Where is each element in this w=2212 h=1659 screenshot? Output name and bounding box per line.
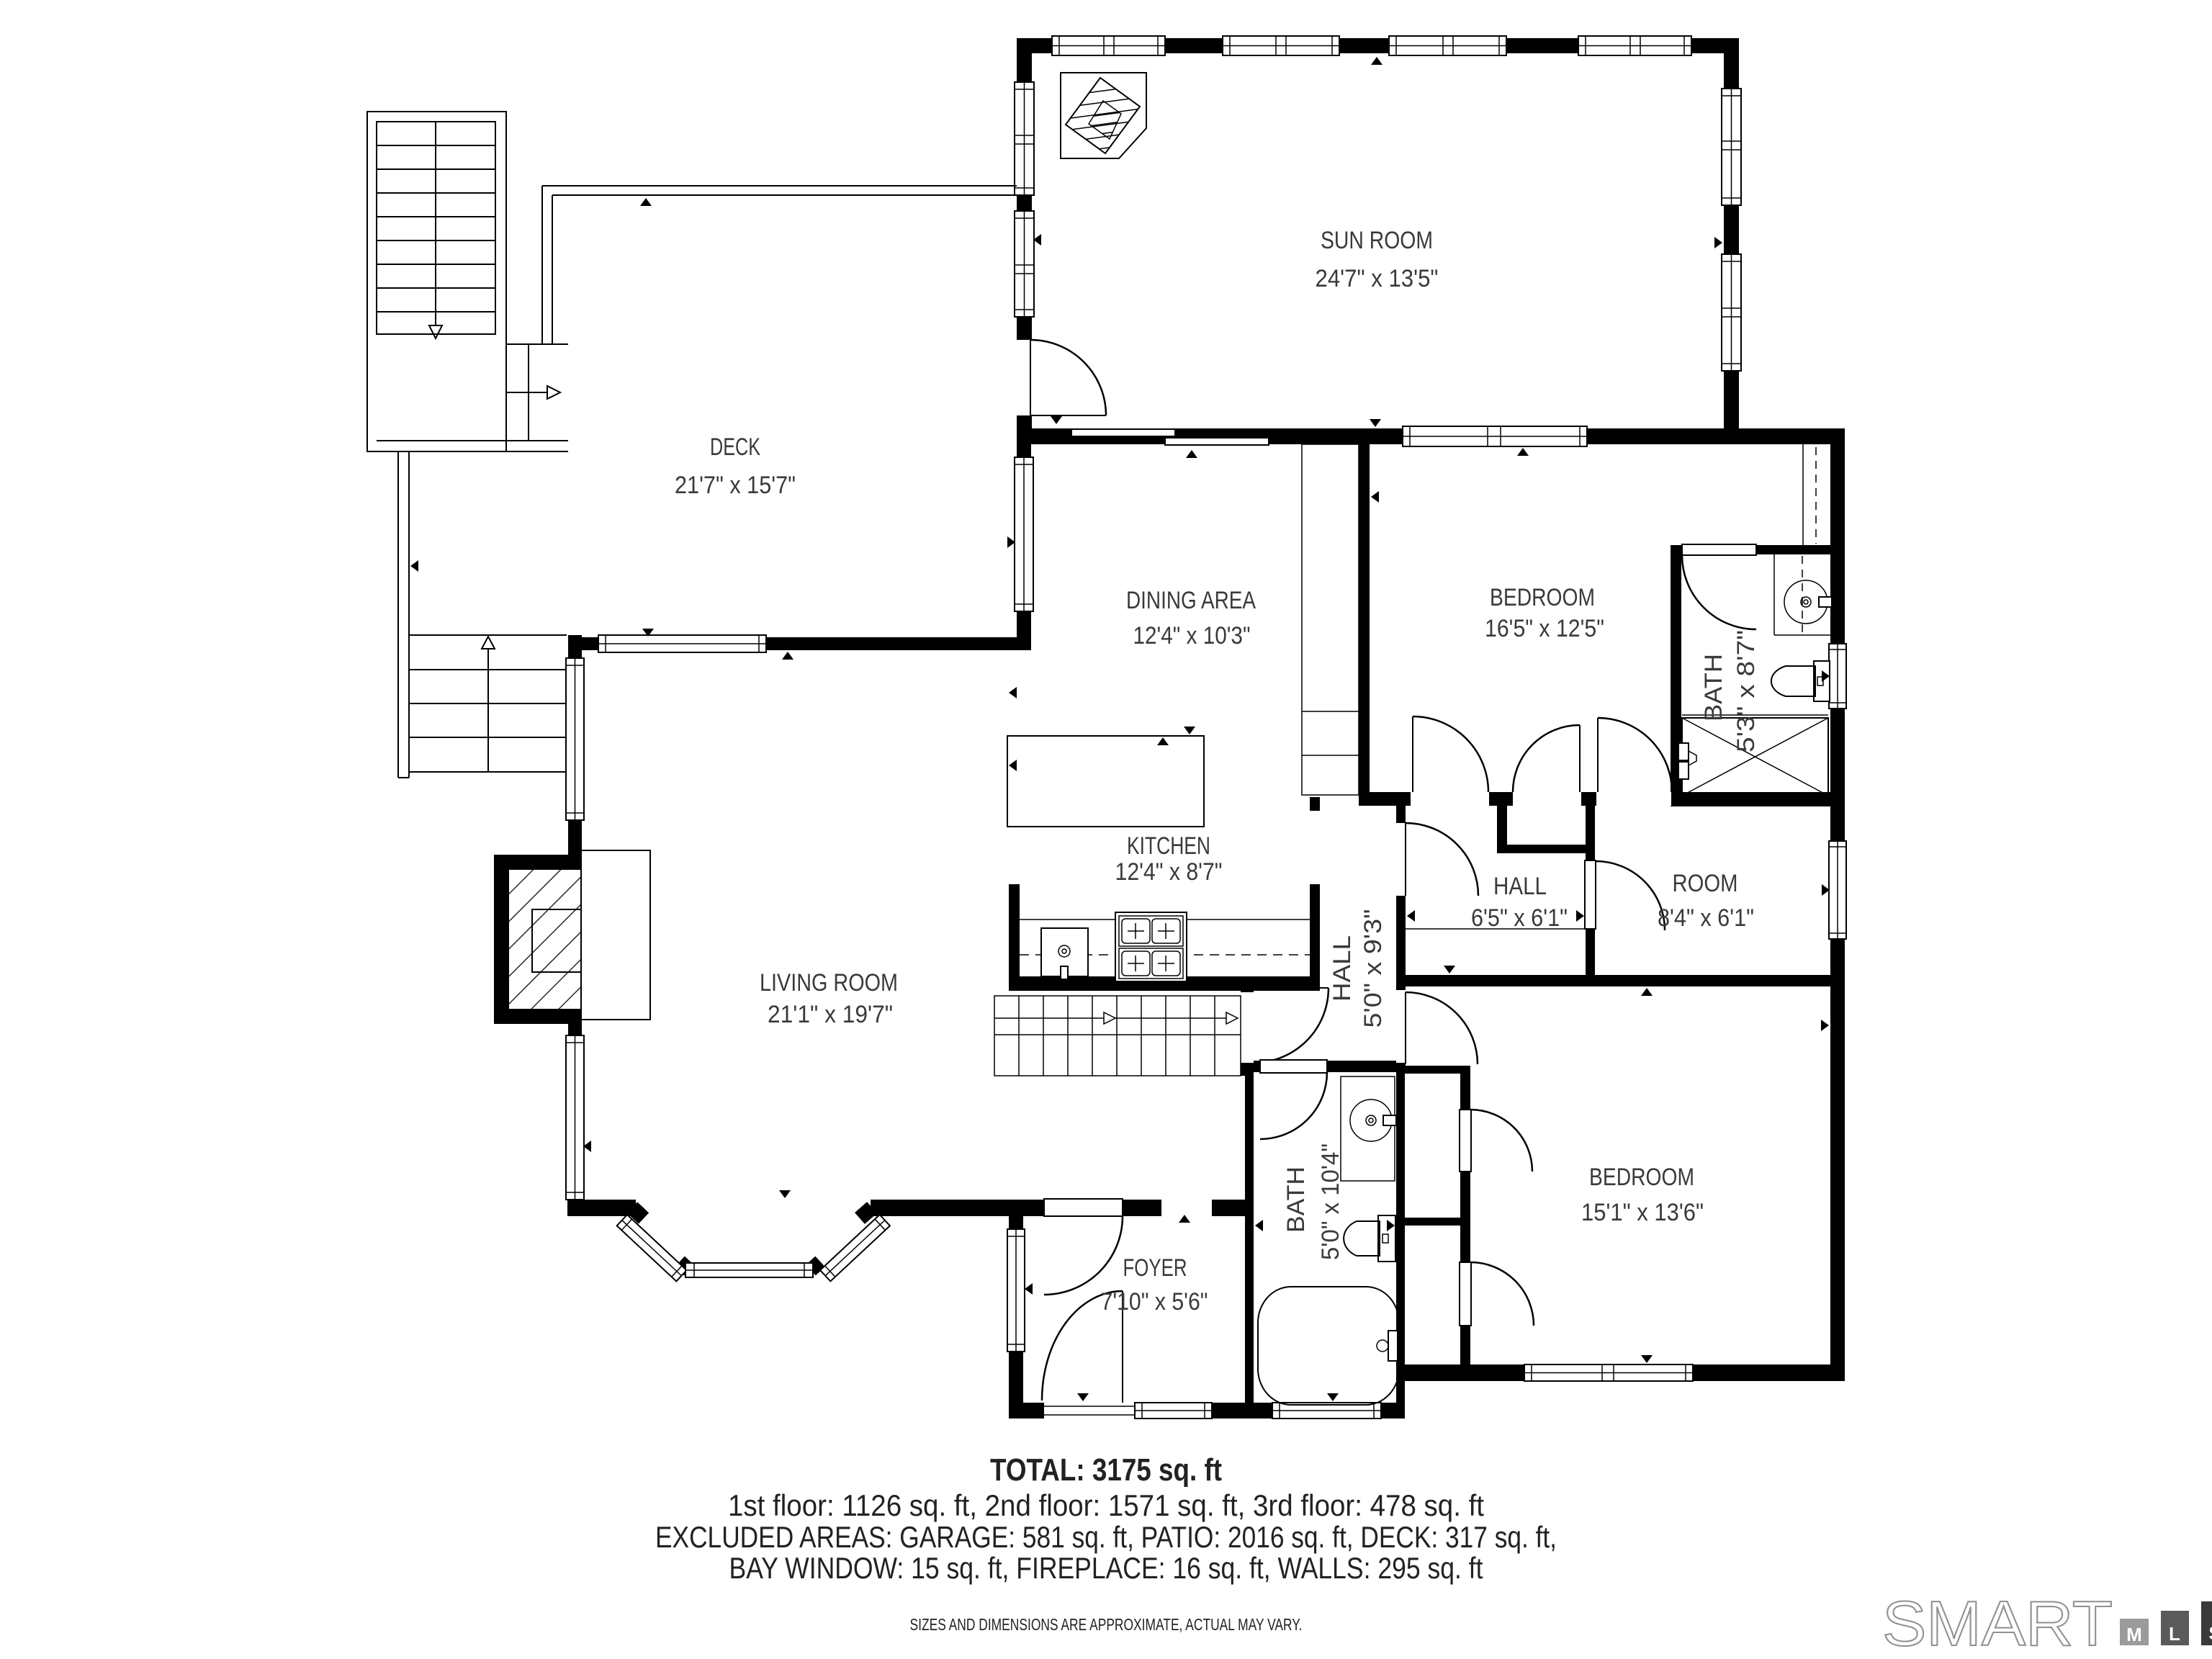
svg-text:BEDROOM: BEDROOM xyxy=(1589,1164,1694,1191)
svg-text:S: S xyxy=(2208,1622,2212,1644)
svg-text:SUN ROOM: SUN ROOM xyxy=(1321,227,1433,254)
svg-text:L: L xyxy=(2169,1623,2180,1645)
svg-text:15'1" x 13'6": 15'1" x 13'6" xyxy=(1581,1199,1704,1226)
svg-text:DECK: DECK xyxy=(710,433,760,461)
svg-text:21'7" x 15'7": 21'7" x 15'7" xyxy=(675,472,796,499)
svg-text:8'4" x 6'1": 8'4" x 6'1" xyxy=(1658,904,1754,932)
svg-text:HALL: HALL xyxy=(1328,935,1356,1002)
svg-text:5'0" x 10'4": 5'0" x 10'4" xyxy=(1317,1143,1344,1260)
svg-text:21'1" x 19'7": 21'1" x 19'7" xyxy=(768,1001,893,1028)
svg-text:BATH: BATH xyxy=(1700,654,1727,721)
svg-text:BATH: BATH xyxy=(1282,1166,1310,1233)
svg-text:BEDROOM: BEDROOM xyxy=(1490,584,1595,611)
svg-text:7'10" x 5'6": 7'10" x 5'6" xyxy=(1101,1288,1208,1316)
svg-text:TOTAL: 3175 sq. ft: TOTAL: 3175 sq. ft xyxy=(990,1452,1222,1488)
svg-text:DINING AREA: DINING AREA xyxy=(1126,587,1256,614)
svg-text:5'3" x 8'7": 5'3" x 8'7" xyxy=(1732,630,1760,752)
svg-text:24'7" x 13'5": 24'7" x 13'5" xyxy=(1316,265,1439,292)
svg-text:12'4" x 8'7": 12'4" x 8'7" xyxy=(1115,858,1223,886)
svg-text:12'4" x 10'3": 12'4" x 10'3" xyxy=(1133,622,1251,649)
svg-text:M: M xyxy=(2126,1624,2142,1645)
svg-text:HALL: HALL xyxy=(1493,873,1547,900)
svg-text:EXCLUDED AREAS: GARAGE: 581 sq: EXCLUDED AREAS: GARAGE: 581 sq. ft, PATI… xyxy=(655,1520,1557,1554)
svg-text:SIZES AND DIMENSIONS ARE APPRO: SIZES AND DIMENSIONS ARE APPROXIMATE, AC… xyxy=(910,1615,1303,1634)
svg-text:5'0" x 9'3": 5'0" x 9'3" xyxy=(1359,909,1387,1028)
svg-text:6'5" x 6'1": 6'5" x 6'1" xyxy=(1471,904,1568,932)
svg-text:KITCHEN: KITCHEN xyxy=(1127,832,1210,860)
svg-text:ROOM: ROOM xyxy=(1673,870,1738,897)
svg-text:FOYER: FOYER xyxy=(1123,1254,1187,1282)
svg-text:1st floor: 1126 sq. ft, 2nd fl: 1st floor: 1126 sq. ft, 2nd floor: 1571 … xyxy=(728,1488,1484,1522)
svg-text:SMART: SMART xyxy=(1882,1588,2113,1659)
svg-text:BAY WINDOW: 15 sq. ft, FIREPLA: BAY WINDOW: 15 sq. ft, FIREPLACE: 16 sq.… xyxy=(729,1551,1483,1585)
svg-text:16'5" x 12'5": 16'5" x 12'5" xyxy=(1485,615,1604,642)
svg-text:LIVING ROOM: LIVING ROOM xyxy=(760,969,898,997)
